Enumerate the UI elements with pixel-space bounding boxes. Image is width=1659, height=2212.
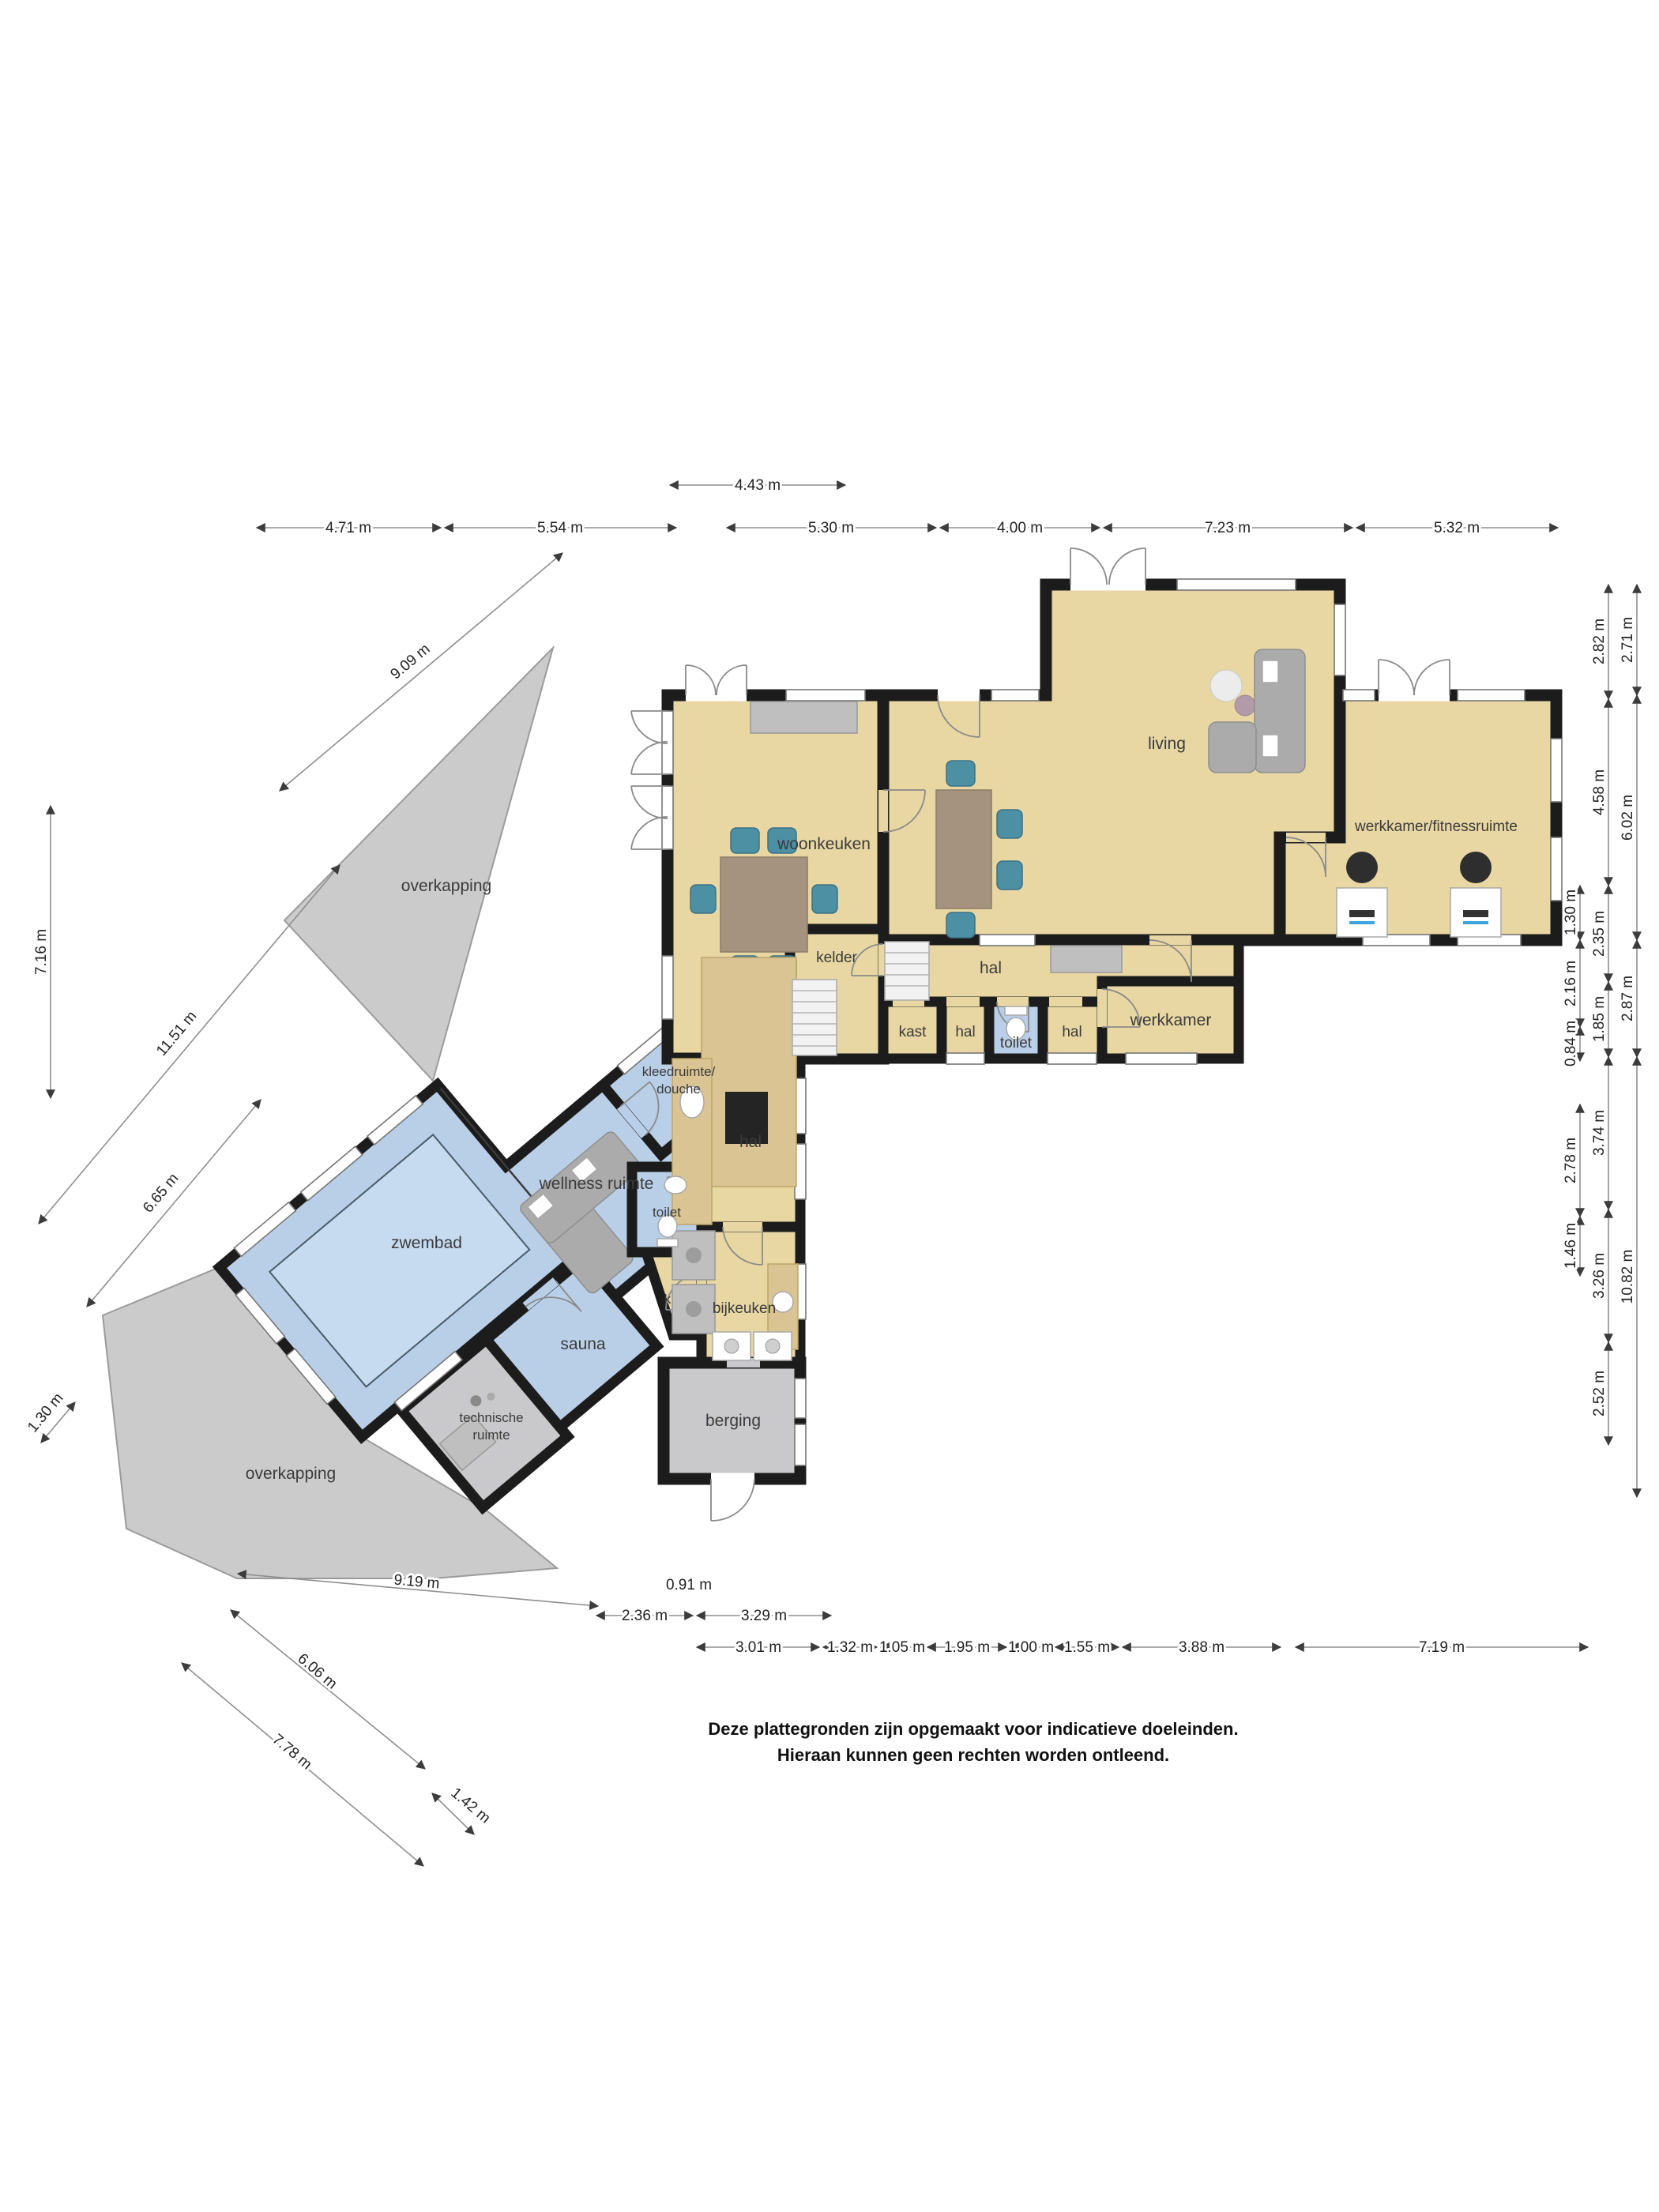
svg-text:4.71 m: 4.71 m: [325, 520, 371, 536]
dim-bottom-row2: 3.01 m 1.32 m 1.05 m 1.95 m 1.00 m 1.55 …: [697, 1639, 1588, 1656]
label-kleedruimte-1: kleedruimte/: [642, 1064, 716, 1079]
label-bijkeuken: bijkeuken: [713, 1300, 776, 1317]
svg-text:1.05 m: 1.05 m: [879, 1639, 925, 1656]
svg-text:1.00 m: 1.00 m: [1008, 1639, 1054, 1656]
dim-right-mid: 2.82 m 4.58 m 2.35 m 1.85 m 3.74 m 3.26 …: [1591, 585, 1608, 1445]
disclaimer-line2: Hieraan kunnen geen rechten worden ontle…: [777, 1745, 1169, 1765]
svg-text:1.42 m: 1.42 m: [448, 1785, 494, 1826]
svg-text:1.30 m: 1.30 m: [1563, 890, 1579, 935]
svg-text:4.58 m: 4.58 m: [1591, 769, 1608, 815]
svg-text:9.09 m: 9.09 m: [387, 641, 433, 683]
svg-text:2.87 m: 2.87 m: [1619, 976, 1636, 1021]
svg-text:3.26 m: 3.26 m: [1591, 1253, 1608, 1299]
svg-text:3.88 m: 3.88 m: [1179, 1639, 1224, 1656]
svg-text:1.55 m: 1.55 m: [1064, 1639, 1110, 1656]
svg-text:6.65 m: 6.65 m: [140, 1170, 182, 1216]
label-hal-small1: hal: [955, 1024, 975, 1040]
svg-text:2.36 m: 2.36 m: [622, 1608, 668, 1624]
label-overkapping-top: overkapping: [401, 877, 491, 895]
dim-bottom-left: 9.19 m 6.06 m 7.78 m 1.42 m: [182, 1572, 598, 1866]
disclaimer-line1: Deze plattegronden zijn opgemaakt voor i…: [708, 1719, 1238, 1739]
svg-text:2.52 m: 2.52 m: [1591, 1371, 1608, 1416]
svg-text:10.82 m: 10.82 m: [1619, 1250, 1636, 1304]
svg-text:1.85 m: 1.85 m: [1591, 996, 1608, 1042]
label-toilet-main: toilet: [1000, 1035, 1033, 1051]
svg-text:7.78 m: 7.78 m: [269, 1731, 315, 1773]
kelder-stairs: [792, 980, 837, 1055]
dim-top-single: 4.43 m: [670, 477, 845, 494]
dim-bottom-row1: 0.91 m 2.36 m 3.29 m: [596, 1577, 831, 1624]
label-zwembad: zwembad: [391, 1234, 462, 1252]
svg-text:2.82 m: 2.82 m: [1591, 619, 1608, 664]
disclaimer: Deze plattegronden zijn opgemaakt voor i…: [708, 1719, 1238, 1765]
kitchen-counter: [672, 1059, 715, 1334]
svg-text:2.35 m: 2.35 m: [1591, 911, 1608, 957]
label-sauna: sauna: [560, 1335, 606, 1353]
svg-text:4.00 m: 4.00 m: [997, 520, 1043, 536]
svg-text:3.29 m: 3.29 m: [741, 1608, 787, 1624]
label-living: living: [1148, 735, 1186, 753]
svg-text:1.46 m: 1.46 m: [1563, 1223, 1579, 1269]
svg-text:5.30 m: 5.30 m: [808, 520, 854, 536]
hal-stairs: [885, 942, 929, 1000]
label-werkkamer: werkkamer: [1130, 1011, 1212, 1029]
hal-sideboard-icon: [1051, 946, 1122, 972]
svg-text:2.78 m: 2.78 m: [1563, 1138, 1579, 1183]
floorplan-page: living woonkeuken werkkamer/fitnessruimt…: [0, 0, 1659, 2212]
svg-text:5.32 m: 5.32 m: [1434, 520, 1480, 536]
svg-text:2.71 m: 2.71 m: [1619, 617, 1636, 663]
svg-text:11.51 m: 11.51 m: [153, 1008, 200, 1059]
label-hal-small2: hal: [1062, 1024, 1082, 1040]
svg-text:3.74 m: 3.74 m: [1591, 1110, 1608, 1156]
svg-text:7.23 m: 7.23 m: [1205, 520, 1251, 536]
svg-text:5.54 m: 5.54 m: [537, 520, 583, 536]
label-kleedruimte-2: douche: [656, 1082, 701, 1097]
office-chair-icon: [1346, 852, 1378, 883]
svg-text:1.30 m: 1.30 m: [24, 1390, 66, 1435]
svg-text:3.01 m: 3.01 m: [735, 1639, 781, 1656]
dim-right-inner: 1.30 m 2.16 m 0.84 m 2.78 m 1.46 m: [1563, 886, 1580, 1276]
label-hal-main: hal: [980, 959, 1002, 977]
dim-label: 4.43 m: [735, 477, 781, 494]
label-woonkeuken: woonkeuken: [777, 835, 871, 853]
svg-text:2.16 m: 2.16 m: [1563, 961, 1579, 1006]
dimensions: 4.43 m 4.71 m 5.54 m 5.30 m 4.00 m 7.23 …: [24, 477, 1637, 1866]
svg-text:6.06 m: 6.06 m: [295, 1650, 340, 1692]
label-overkapping-bottom: overkapping: [246, 1465, 336, 1483]
svg-text:7.16 m: 7.16 m: [33, 929, 50, 975]
svg-text:1.95 m: 1.95 m: [944, 1639, 990, 1656]
label-wellness: wellness ruimte: [539, 1175, 654, 1193]
office-chair-icon: [1460, 852, 1492, 883]
svg-text:1.32 m: 1.32 m: [827, 1639, 873, 1656]
svg-text:9.19 m: 9.19 m: [393, 1572, 441, 1593]
svg-text:7.19 m: 7.19 m: [1419, 1639, 1465, 1656]
svg-text:6.02 m: 6.02 m: [1619, 795, 1636, 841]
label-technische-1: technische: [459, 1410, 523, 1425]
svg-text:0.91 m: 0.91 m: [666, 1577, 712, 1593]
label-kelder: kelder: [816, 950, 857, 966]
overkapping-top-area: [284, 648, 553, 1081]
label-toilet-wellness: toilet: [653, 1205, 681, 1220]
label-technische-2: ruimte: [472, 1428, 510, 1443]
kitchen-island: [702, 957, 796, 1187]
dim-right-outer: 2.71 m 6.02 m 2.87 m 10.82 m: [1619, 585, 1637, 1497]
label-hal-wellness: hal: [739, 1133, 762, 1151]
label-fitness: werkkamer/fitnessruimte: [1354, 818, 1518, 835]
sideboard-icon: [750, 702, 857, 733]
label-berging: berging: [705, 1412, 761, 1430]
label-k: k: [664, 1292, 671, 1307]
label-kast: kast: [899, 1024, 927, 1040]
dim-top-row: 4.71 m 5.54 m 5.30 m 4.00 m 7.23 m 5.32 …: [257, 520, 1558, 536]
svg-text:0.84 m: 0.84 m: [1563, 1021, 1579, 1066]
